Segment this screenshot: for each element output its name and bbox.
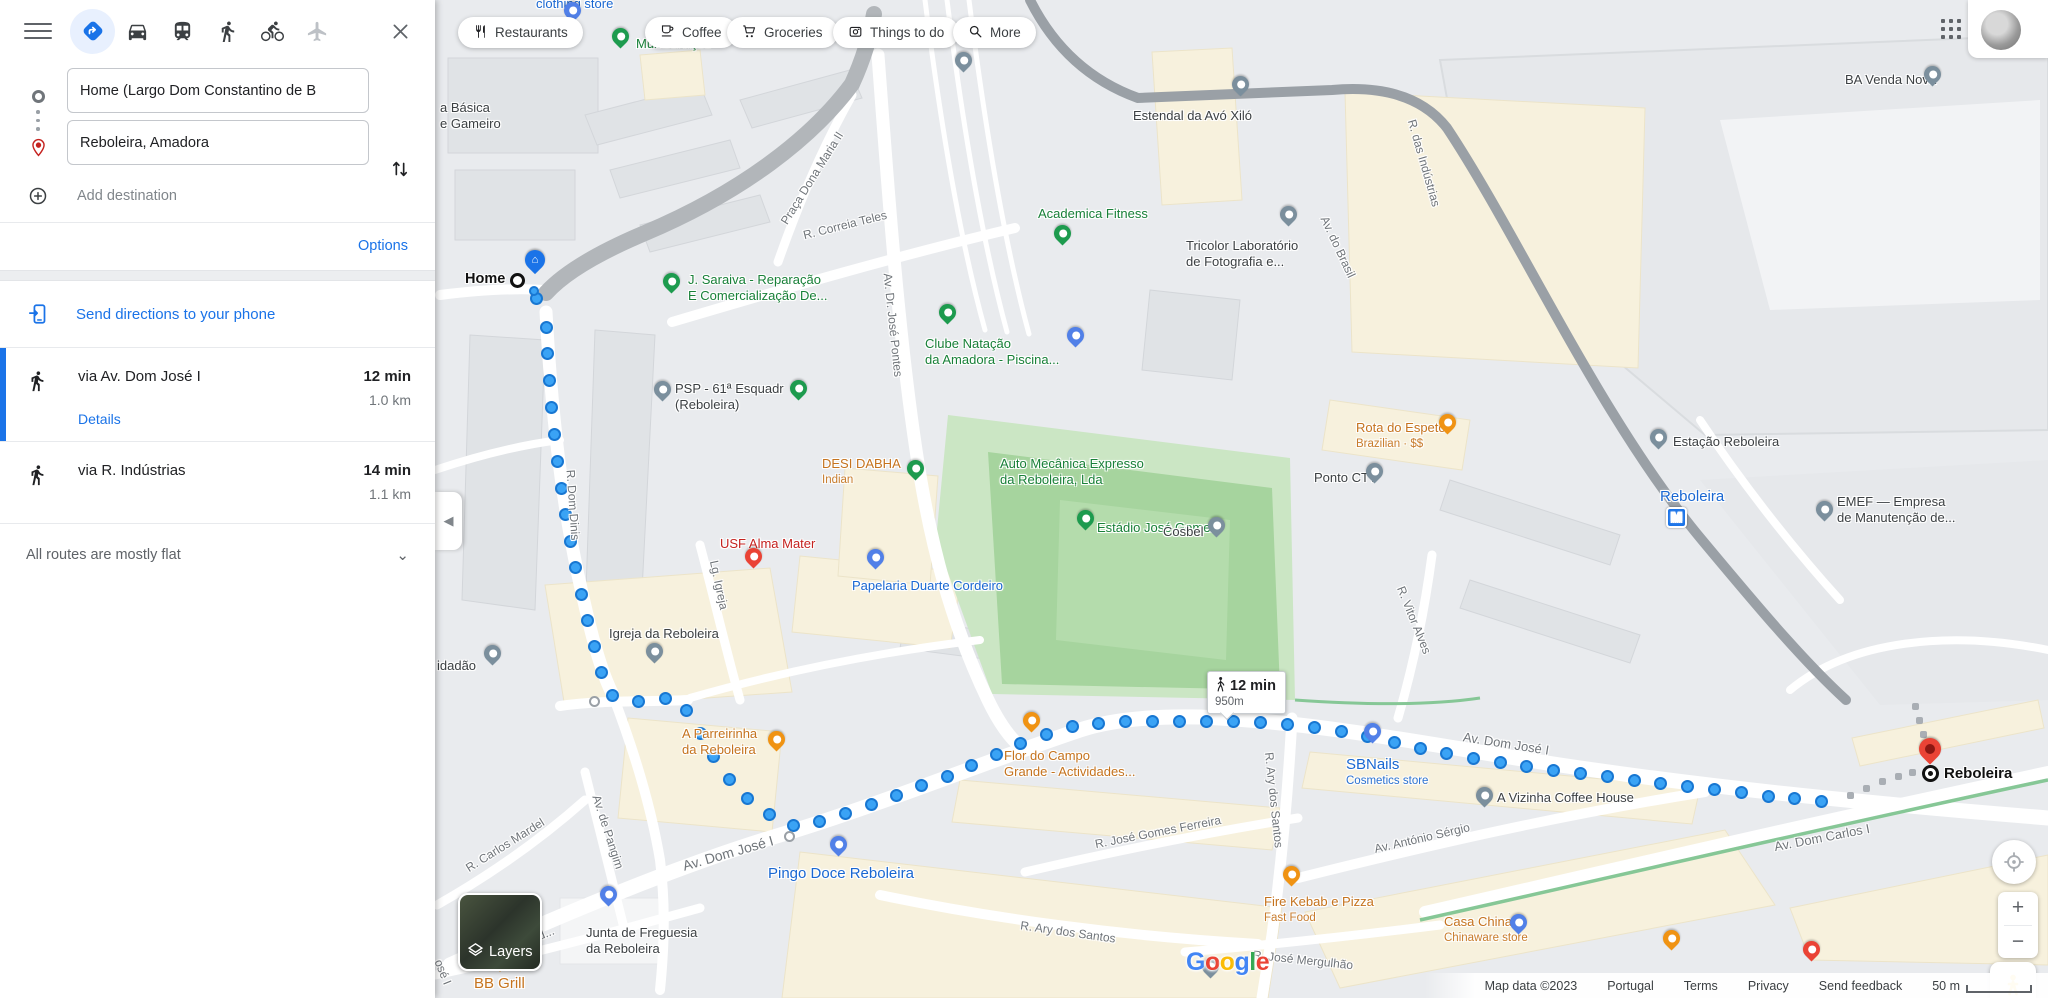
my-location-button[interactable] — [1992, 840, 2036, 884]
destination-marker[interactable] — [1922, 765, 1939, 782]
send-feedback-link[interactable]: Send feedback — [1819, 979, 1902, 993]
poi-label-academica-fitness[interactable]: Academica Fitness — [1038, 206, 1148, 222]
walking-icon — [1215, 676, 1226, 696]
send-to-phone-icon — [28, 303, 50, 325]
poi-label-pingo-doce[interactable]: Pingo Doce Reboleira — [768, 866, 914, 882]
chevron-down-icon: ⌄ — [396, 546, 409, 564]
route-dot-secondary — [1916, 717, 1923, 724]
options-button[interactable]: Options — [358, 238, 408, 254]
map-data-label[interactable]: Map data ©2023 — [1485, 979, 1578, 993]
search-icon — [968, 24, 983, 42]
privacy-link[interactable]: Privacy — [1748, 979, 1789, 993]
poi-label-clube-natacao[interactable]: Clube Nataçãoda Amadora - Piscina... — [925, 336, 1059, 368]
google-apps-icon[interactable] — [1941, 19, 1961, 39]
route-dot — [813, 815, 826, 828]
route-dot — [595, 666, 608, 679]
origin-route-dot — [529, 286, 539, 296]
chip-groceries[interactable]: Groceries — [727, 17, 838, 48]
route-waypoint-circle — [589, 696, 600, 707]
travel-mode-transit[interactable] — [160, 9, 205, 54]
directions-panel: Add destination Options Send directions … — [0, 0, 435, 998]
poi-label-bb-grill[interactable]: BB Grill — [474, 976, 525, 992]
section-divider — [0, 270, 435, 281]
destination-input[interactable] — [67, 120, 369, 165]
tooltip-distance: 950m — [1215, 696, 1276, 708]
menu-button[interactable] — [24, 17, 52, 45]
origin-marker[interactable] — [510, 273, 525, 288]
zoom-in-button[interactable]: + — [1998, 892, 2038, 925]
google-logo: Google — [1186, 948, 1269, 977]
scale-bar — [1966, 985, 2032, 993]
target-icon — [2003, 851, 2025, 873]
route-dot — [723, 773, 736, 786]
walking-icon — [26, 370, 52, 427]
route-via-label: via Av. Dom José I — [78, 368, 363, 385]
region-label[interactable]: Portugal — [1607, 979, 1654, 993]
route-dot — [1200, 715, 1213, 728]
car-icon — [126, 20, 149, 43]
poi-label-a-parreirinha[interactable]: A Parreirinhada Reboleira — [682, 726, 757, 758]
poi-label-psp-esquadra[interactable]: PSP - 61ª Esquadr(Reboleira) — [675, 381, 784, 413]
restaurant-icon — [473, 24, 488, 42]
waypoint-fields: Add destination — [0, 62, 435, 222]
close-directions-button[interactable] — [383, 14, 417, 48]
home-marker-label: Home — [465, 271, 505, 287]
home-pin-icon[interactable]: ⌂ — [521, 246, 549, 274]
route-dot — [1467, 752, 1480, 765]
add-destination-button[interactable]: Add destination — [0, 172, 435, 222]
route-dot — [540, 321, 553, 334]
chip-restaurants[interactable]: Restaurants — [458, 17, 583, 48]
route-dot — [941, 770, 954, 783]
origin-input[interactable] — [67, 68, 369, 113]
chip-coffee[interactable]: Coffee — [645, 17, 737, 48]
origin-icon — [32, 90, 45, 103]
travel-mode-best[interactable] — [70, 9, 115, 54]
route-dot — [632, 695, 645, 708]
route-duration-tooltip[interactable]: 12 min 950m — [1207, 671, 1286, 714]
selected-route-indicator — [0, 348, 6, 441]
route-dot-secondary — [1847, 792, 1854, 799]
chip-label: More — [990, 25, 1021, 40]
route-distance: 1.1 km — [363, 486, 411, 502]
attraction-icon — [848, 24, 863, 42]
route-duration: 12 min — [363, 368, 411, 385]
zoom-out-button[interactable]: − — [1998, 926, 2038, 959]
route-waypoint-circle — [784, 831, 795, 842]
poi-label-sbnails[interactable]: SBNailsCosmetics store — [1346, 757, 1428, 789]
route-dot — [588, 640, 601, 653]
travel-mode-cycling[interactable] — [250, 9, 295, 54]
poi-label-papelaria-duarte[interactable]: Papelaria Duarte Cordeiro — [852, 578, 1003, 594]
route-dot — [575, 588, 588, 601]
google-maps-app: clothing storeMultiserviçosa Básicae Gam… — [0, 0, 2048, 998]
route-dot — [1762, 790, 1775, 803]
walk-icon — [216, 20, 239, 43]
poi-label-reboleira-metro[interactable]: ReboleiraM — [1660, 489, 1724, 528]
route-dot-secondary — [1909, 769, 1916, 776]
route-details-link[interactable]: Details — [78, 411, 363, 427]
chip-label: Things to do — [870, 25, 944, 40]
route-dot — [1308, 721, 1321, 734]
poi-label-escola-basica[interactable]: a Básicae Gameiro — [440, 100, 501, 132]
poi-label-espaco-cidadao[interactable]: idadão — [437, 658, 476, 674]
route-dot — [1040, 728, 1053, 741]
chip-label: Restaurants — [495, 25, 568, 40]
poi-label-desi-dabha[interactable]: DESI DABHAIndian — [822, 456, 901, 488]
account-avatar[interactable] — [1981, 10, 2021, 50]
route-dot-secondary — [1920, 731, 1927, 738]
poi-label-estacao-reboleira[interactable]: Estação Reboleira — [1673, 434, 1779, 450]
poi-label-j-saraiva[interactable]: J. Saraiva - ReparaçãoE Comercialização … — [688, 272, 827, 304]
poi-label-a-vizinha[interactable]: A Vizinha Coffee House — [1497, 790, 1634, 806]
layers-icon — [467, 941, 484, 962]
destination-pin-field-icon — [26, 138, 50, 162]
poi-label-auto-mecanica[interactable]: Auto Mecânica Expressoda Reboleira, Lda — [1000, 456, 1144, 488]
route-dot — [680, 704, 693, 717]
travel-mode-flight[interactable] — [295, 9, 340, 54]
route-dot — [865, 798, 878, 811]
route-dot-secondary — [1863, 785, 1870, 792]
coffee-icon — [660, 24, 675, 42]
route-dot — [1146, 715, 1159, 728]
options-row: Options — [0, 222, 435, 270]
poi-label-ba-venda-nova[interactable]: BA Venda Nova — [1845, 72, 1936, 88]
poi-label-flor-do-campo[interactable]: Flor do CampoGrande - Actividades... — [1004, 748, 1136, 780]
route-dot — [1574, 767, 1587, 780]
route-dot — [839, 807, 852, 820]
layers-button[interactable]: Layers — [458, 893, 542, 971]
route-dot — [1173, 715, 1186, 728]
chip-label: Groceries — [764, 25, 823, 40]
poi-label-estendal-avo-xilo[interactable]: Estendal da Avó Xiló — [1133, 108, 1252, 124]
scale-label: 50 m — [1932, 979, 1960, 993]
route-option-1[interactable]: via Av. Dom José I Details 12 min 1.0 km — [0, 348, 435, 442]
route-distance: 1.0 km — [363, 392, 411, 408]
walking-icon — [26, 464, 52, 509]
travel-modes-bar — [0, 0, 435, 62]
route-dot-secondary — [1912, 703, 1919, 710]
poi-label-emef[interactable]: EMEF — Empresade Manutenção de... — [1837, 494, 1956, 526]
travel-mode-driving[interactable] — [115, 9, 160, 54]
close-icon — [390, 21, 411, 42]
chip-things-to-do[interactable]: Things to do — [833, 17, 959, 48]
route-dot — [1335, 725, 1348, 738]
route-dot — [1494, 756, 1507, 769]
route-dot — [1547, 764, 1560, 777]
zoom-controls: + − — [1998, 892, 2038, 958]
route-dot — [1414, 742, 1427, 755]
swap-arrows-icon — [389, 158, 411, 180]
route-option-2[interactable]: via R. Indústrias 14 min 1.1 km — [0, 442, 435, 524]
swap-waypoints-button[interactable] — [383, 152, 417, 186]
terms-link[interactable]: Terms — [1684, 979, 1718, 993]
sidebar-collapse-button[interactable]: ◀ — [435, 492, 462, 550]
chip-label: Coffee — [682, 25, 722, 40]
route-dot — [965, 759, 978, 772]
route-duration: 14 min — [363, 462, 411, 479]
destination-marker-label: Reboleira — [1944, 765, 2012, 782]
transit-icon — [171, 20, 194, 43]
flight-icon — [306, 20, 329, 43]
route-dot — [890, 789, 903, 802]
route-dot — [1066, 720, 1079, 733]
route-dot — [1628, 774, 1641, 787]
poi-label-rota-do-espeto[interactable]: Rota do EspetoBrazilian · $$ — [1356, 420, 1446, 452]
route-dot — [1388, 736, 1401, 749]
poi-label-usf-alma-mater[interactable]: USF Alma Mater — [720, 536, 815, 552]
best-route-icon — [81, 19, 105, 43]
waypoint-dots — [26, 110, 50, 131]
map-scale: 50 m — [1932, 979, 2032, 993]
send-to-phone-button[interactable]: Send directions to your phone — [0, 281, 435, 348]
layers-label: Layers — [489, 944, 533, 960]
poi-label-cosbel[interactable]: Cosbel — [1163, 524, 1203, 540]
poi-label-junta-freguesia[interactable]: Junta de Freguesiada Reboleira — [586, 925, 697, 957]
routes-flat-note[interactable]: All routes are mostly flat ⌄ — [0, 524, 435, 586]
plus-circle-icon — [28, 186, 48, 206]
metro-icon[interactable]: M — [1666, 507, 1687, 528]
poi-label-tricolor-laboratorio[interactable]: Tricolor Laboratóriode Fotografia e... — [1186, 238, 1298, 270]
map-attribution: Map data ©2023 Portugal Terms Privacy Se… — [1425, 973, 2048, 998]
chip-more[interactable]: More — [953, 17, 1036, 48]
travel-mode-walking[interactable] — [205, 9, 250, 54]
route-via-label: via R. Indústrias — [78, 462, 363, 509]
route-dot-secondary — [1879, 778, 1886, 785]
route-dot — [990, 748, 1003, 761]
poi-label-igreja-da-reboleira[interactable]: Igreja da Reboleira — [609, 626, 719, 642]
bike-icon — [261, 20, 284, 43]
tooltip-duration: 12 min — [1230, 678, 1276, 694]
grocery-icon — [742, 24, 757, 42]
route-dot-secondary — [1895, 773, 1902, 780]
route-dot — [659, 692, 672, 705]
poi-label-fire-kebab[interactable]: Fire Kebab e PizzaFast Food — [1264, 894, 1374, 926]
